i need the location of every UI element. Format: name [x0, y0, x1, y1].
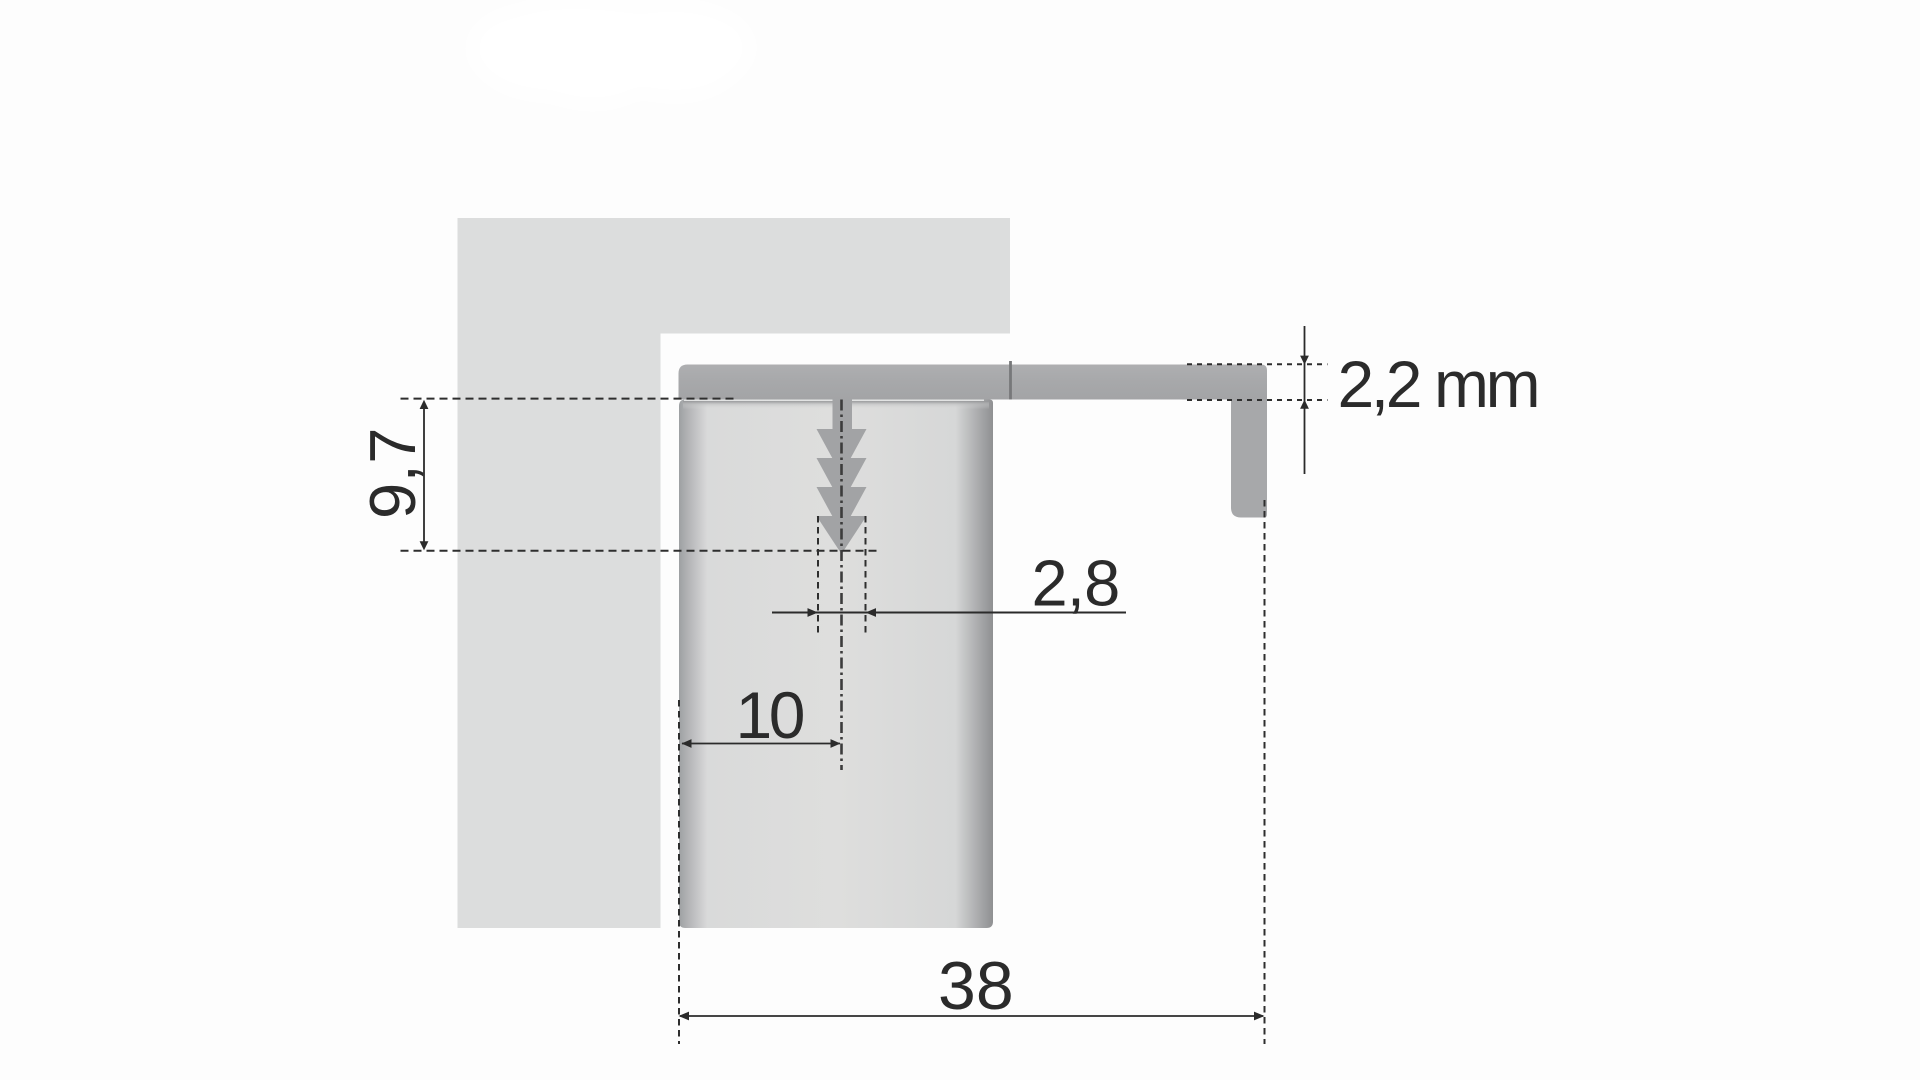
- svg-text:38: 38: [938, 948, 1014, 1024]
- svg-text:9,7: 9,7: [356, 427, 429, 519]
- svg-text:2,2 mm: 2,2 mm: [1338, 347, 1538, 421]
- svg-text:10: 10: [736, 678, 804, 752]
- svg-text:2,8: 2,8: [1032, 547, 1120, 620]
